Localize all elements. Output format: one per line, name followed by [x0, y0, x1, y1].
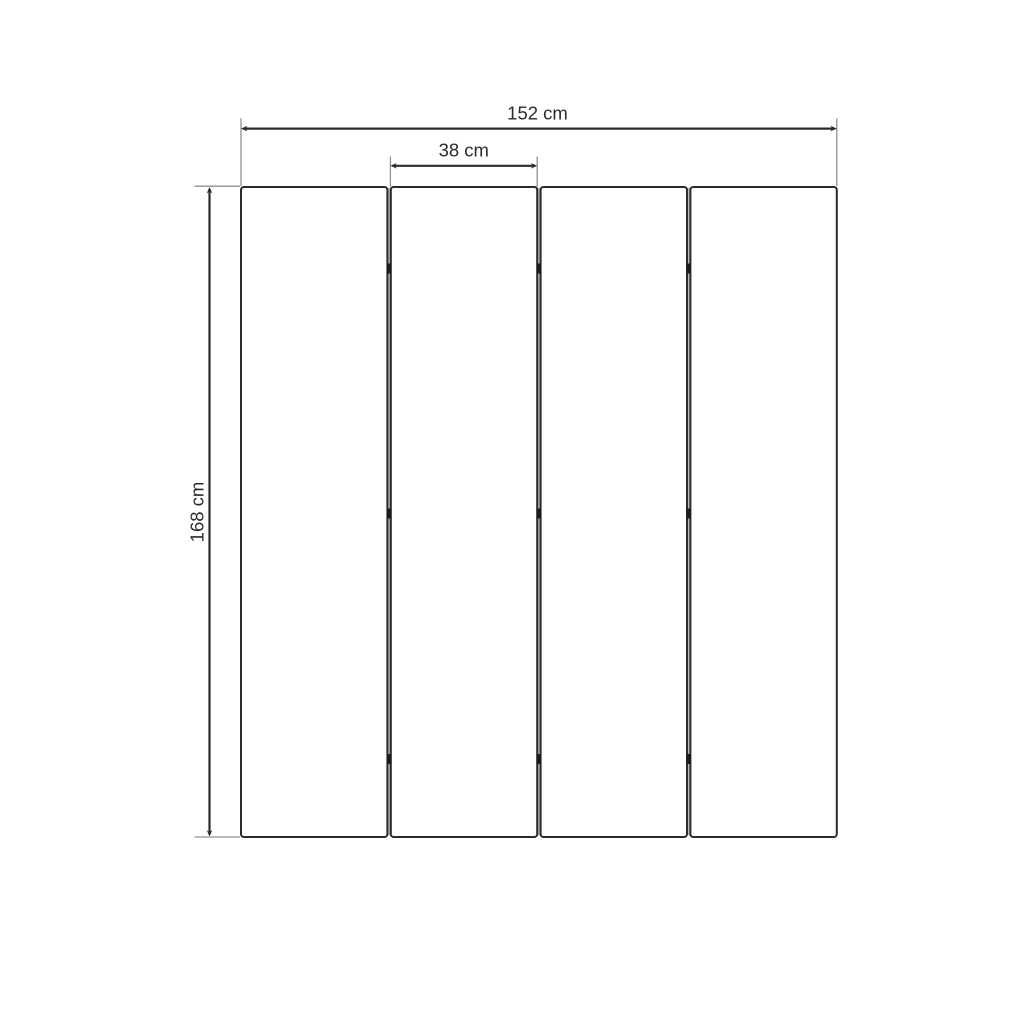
- svg-text:168 cm: 168 cm: [187, 482, 208, 543]
- svg-text:152 cm: 152 cm: [507, 103, 568, 124]
- svg-text:38 cm: 38 cm: [439, 140, 489, 161]
